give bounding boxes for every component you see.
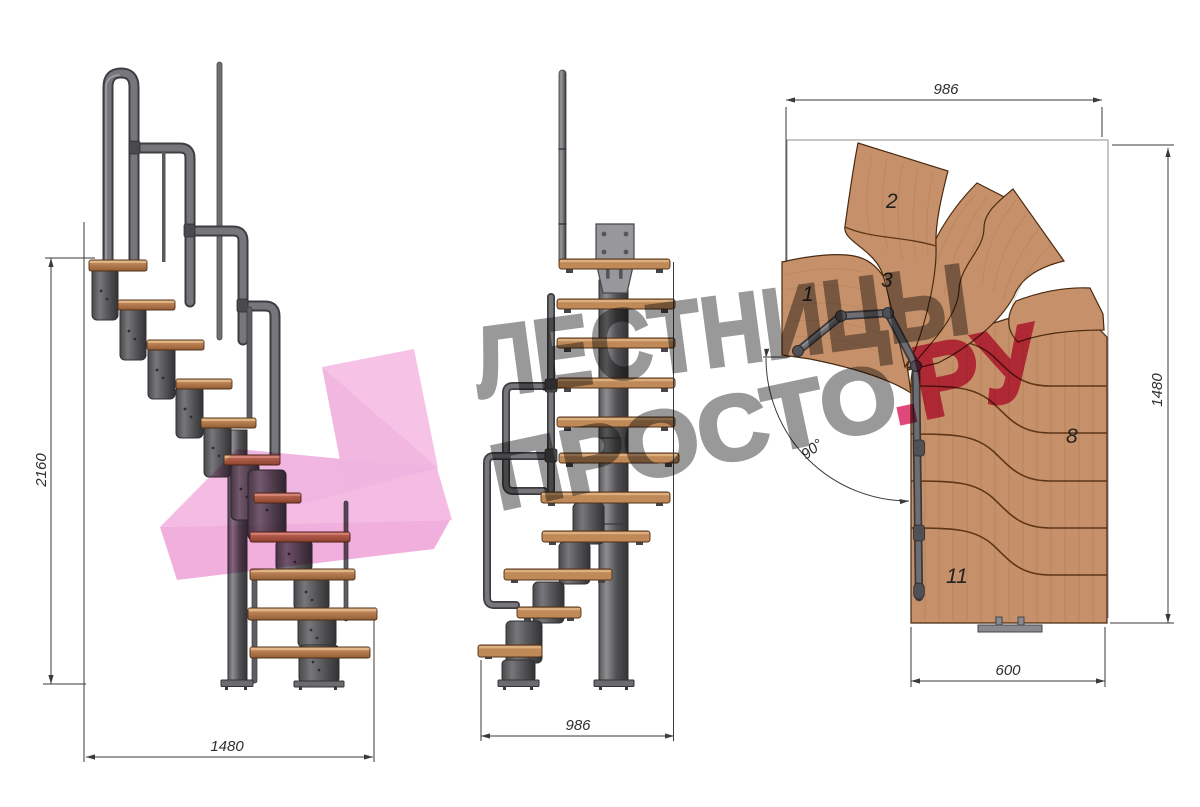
svg-text:986: 986 — [933, 81, 959, 98]
svg-text:8: 8 — [1066, 425, 1078, 448]
svg-text:1480: 1480 — [1149, 373, 1166, 407]
svg-text:2160: 2160 — [33, 453, 50, 488]
svg-text:11: 11 — [946, 565, 968, 588]
svg-text:986: 986 — [565, 717, 591, 734]
svg-text:600: 600 — [995, 662, 1021, 679]
svg-text:1480: 1480 — [210, 738, 244, 755]
svg-text:2: 2 — [885, 190, 898, 213]
